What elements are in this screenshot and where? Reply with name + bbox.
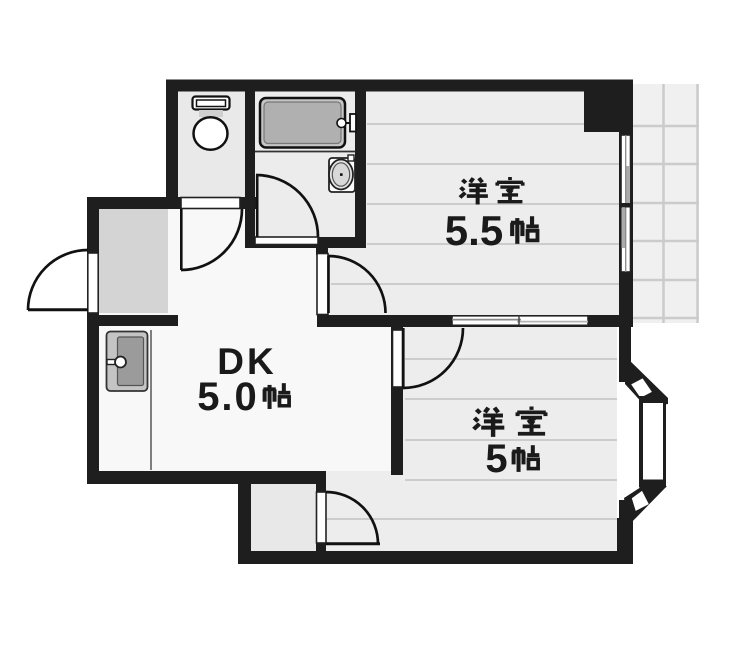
svg-text:5.5: 5.5 bbox=[445, 207, 503, 254]
svg-text:5.0: 5.0 bbox=[197, 375, 259, 419]
svg-text:5: 5 bbox=[485, 437, 507, 481]
